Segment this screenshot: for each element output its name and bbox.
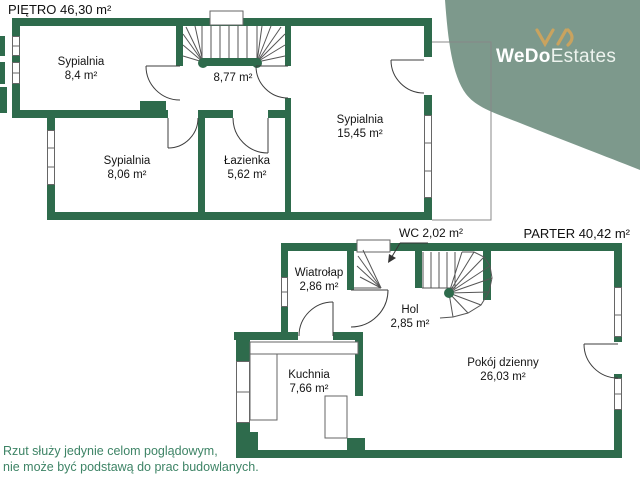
room-label-wiatrolap: Wiatrołap 2,86 m²: [295, 266, 344, 294]
room-label-sypialnia-84: Sypialnia 8,4 m²: [58, 55, 105, 83]
room-label-hall-877: 8,77 m²: [214, 71, 253, 85]
parter-stairs: [422, 252, 492, 318]
disclaimer-line-2: nie może być podstawą do prac budowlanyc…: [3, 459, 259, 475]
room-label-kuchnia: Kuchnia 7,66 m²: [288, 368, 330, 396]
blob-shape: [445, 0, 640, 170]
floorplan-page: PIĘTRO 46,30 m² PARTER 40,42 m² WC 2,02 …: [0, 0, 640, 480]
pietro-plan: [0, 11, 491, 220]
door: [233, 118, 268, 153]
entry-transom-notch: [357, 240, 390, 252]
pietro-windows: [13, 11, 432, 198]
disclaimer-text: Rzut służy jedynie celom poglądowym, nie…: [3, 443, 259, 475]
logo-text-estates: Estates: [551, 46, 616, 67]
parter-floor-title: PARTER 40,42 m²: [455, 226, 630, 241]
window: [13, 63, 20, 84]
wc-door-swing: [354, 250, 381, 288]
room-label-sypialnia-806: Sypialnia 8,06 m²: [104, 154, 151, 182]
door: [351, 290, 388, 327]
window: [282, 278, 288, 307]
door: [391, 60, 424, 93]
room-label-hol: Hol 2,85 m²: [391, 303, 430, 331]
window: [615, 288, 622, 337]
stair-skylight-notch: [210, 11, 243, 25]
window: [48, 131, 55, 185]
window: [425, 116, 432, 198]
parter-plan: [234, 240, 622, 458]
room-label-wc: WC 2,02 m²: [399, 226, 463, 240]
neighbor-wall-stub: [0, 87, 7, 113]
logo-text-wedo: WeDo: [496, 46, 551, 67]
room-label-lazienka: Łazienka 5,62 m²: [224, 154, 270, 182]
kitchen-counter-left: [250, 354, 277, 420]
entrance-door: [299, 302, 333, 336]
room-label-sypialnia-1545: Sypialnia 15,45 m²: [337, 113, 384, 141]
neighbor-wall-stub: [0, 36, 5, 56]
disclaimer-line-1: Rzut służy jedynie celom poglądowym,: [3, 443, 259, 459]
door: [168, 118, 198, 148]
wedo-estates-logo: WeDoEstates: [496, 46, 616, 68]
window: [237, 362, 250, 423]
room-label-pokoj-dzienny: Pokój dzienny 26,03 m²: [467, 356, 539, 384]
stair-newel-post: [444, 288, 454, 298]
window: [615, 379, 622, 410]
window: [13, 37, 20, 56]
stair-landing-bar: [202, 58, 257, 66]
kitchen-counter-tall: [325, 396, 347, 438]
balcony-door: [584, 344, 618, 378]
stair-newel-post: [198, 58, 208, 68]
neighbor-wall-stub: [0, 62, 5, 84]
door: [256, 66, 288, 98]
brand-blob: [445, 0, 640, 170]
kitchen-counter-top: [250, 342, 358, 354]
door: [146, 66, 180, 100]
pietro-floor-title: PIĘTRO 46,30 m²: [8, 2, 111, 17]
